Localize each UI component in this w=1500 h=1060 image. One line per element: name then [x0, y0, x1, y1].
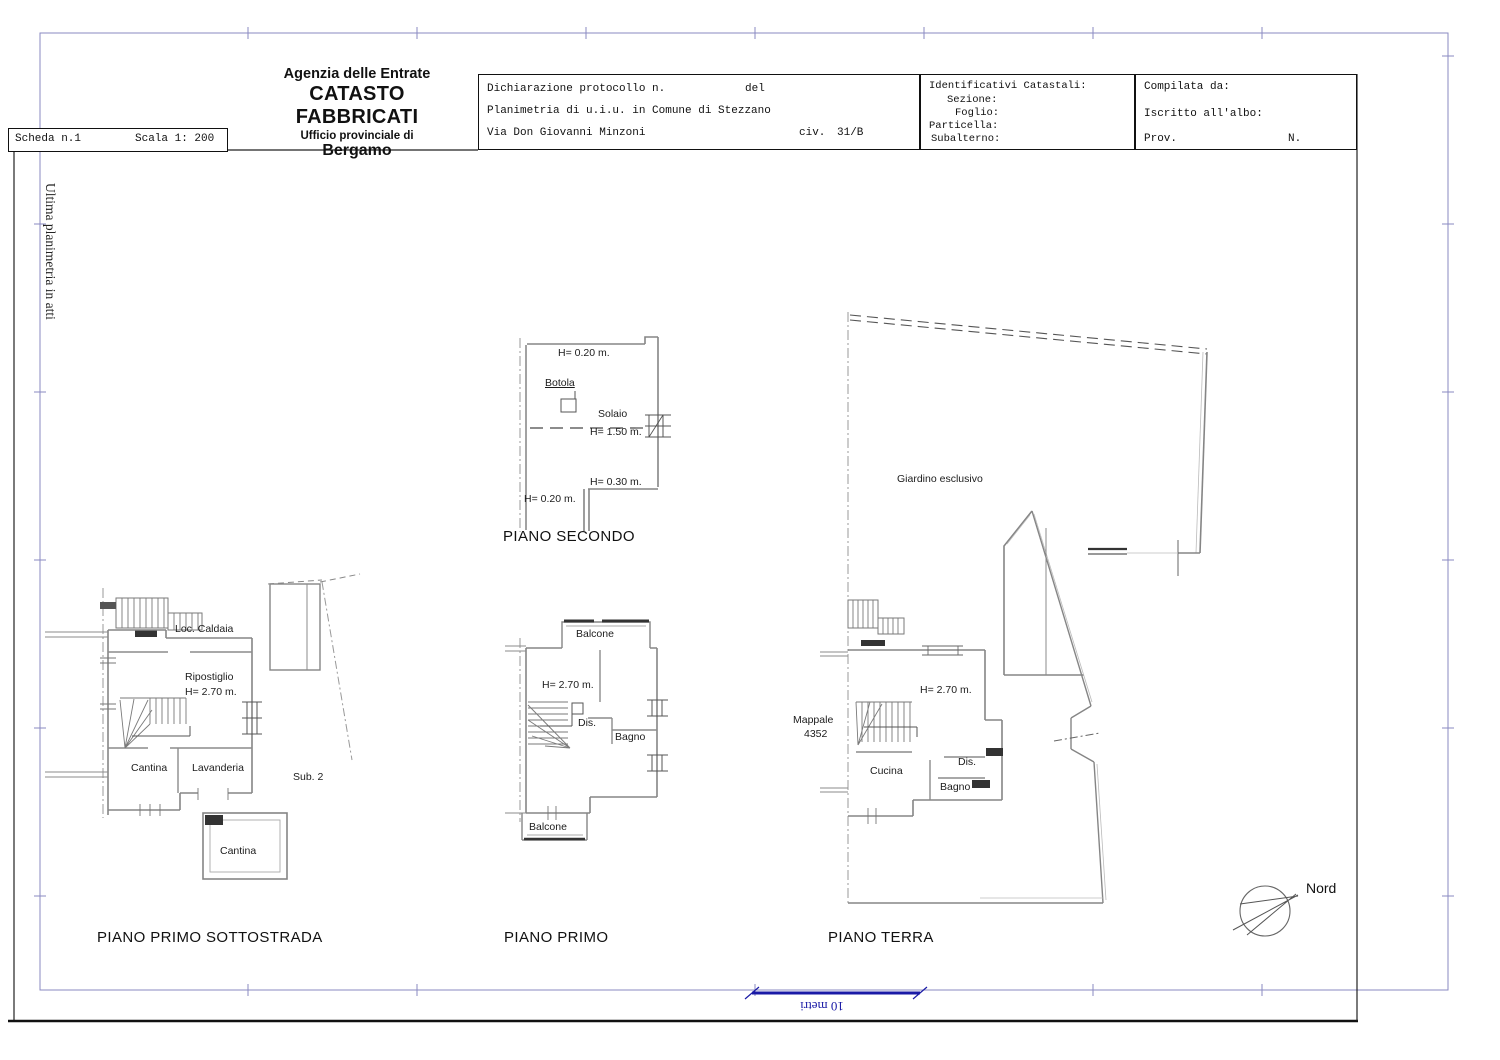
sezione-label: Sezione: — [947, 94, 997, 106]
terra-cucina-label: Cucina — [870, 765, 903, 777]
subalterno-label: Subalterno: — [931, 133, 1000, 145]
plan-piano-terra-drawing — [820, 312, 1207, 905]
scheda-number: Scheda n.1 — [15, 133, 81, 145]
north-label: Nord — [1306, 880, 1336, 896]
secondo-h-low-label: H= 0.30 m. — [590, 476, 642, 488]
cadastral-title: Identificativi Catastali: — [929, 80, 1087, 92]
office-line: Ufficio provinciale di — [252, 130, 462, 142]
compilata-label: Compilata da: — [1144, 81, 1230, 93]
primo-balcone-top-label: Balcone — [576, 628, 614, 640]
foglio-label: Foglio: — [955, 107, 999, 119]
protocol-del-label: del — [745, 83, 765, 95]
terra-giardino-label: Giardino esclusivo — [897, 473, 983, 485]
n-label: N. — [1288, 133, 1301, 145]
secondo-botola-label: Botola — [545, 377, 575, 389]
secondo-solaio-label: Solaio — [598, 408, 627, 420]
planimetria-line: Planimetria di u.i.u. in Comune di Stezz… — [487, 105, 771, 117]
terra-height-label: H= 2.70 m. — [920, 684, 972, 696]
terra-bagno-label: Bagno — [940, 781, 970, 793]
plan-sottostrada-drawing — [45, 574, 360, 879]
primo-height-label: H= 2.70 m. — [542, 679, 594, 691]
street-name: Via Don Giovanni Minzoni — [487, 127, 645, 139]
terra-dis-label: Dis. — [958, 756, 976, 768]
catasto-title: CATASTO FABBRICATI — [252, 83, 462, 129]
north-compass — [1233, 886, 1298, 936]
piano-secondo-title: PIANO SECONDO — [503, 528, 635, 545]
agency-header: Agenzia delle Entrate CATASTO FABBRICATI… — [252, 66, 462, 160]
drawing-layer — [0, 0, 1500, 1060]
margin-note: Ultima planimetria in atti — [42, 183, 58, 320]
piano-sottostrada-title: PIANO PRIMO SOTTOSTRADA — [97, 929, 323, 946]
piano-terra-title: PIANO TERRA — [828, 929, 934, 946]
primo-balcone-bottom-label: Balcone — [529, 821, 567, 833]
cadastral-sheet: Scheda n.1 Scala 1: 200 Agenzia delle En… — [0, 0, 1500, 1060]
sottostrada-lavanderia-label: Lavanderia — [192, 762, 244, 774]
secondo-h-mid-label: H= 1.50 m. — [590, 426, 642, 438]
compiler-box: Compilata da: Iscritto all'albo: Prov. N… — [1135, 74, 1357, 150]
sottostrada-loc-caldaia-label: Loc. Caldaia — [175, 623, 233, 635]
terra-mappale-label: Mappale — [793, 714, 833, 726]
protocol-label: Dichiarazione protocollo n. — [487, 83, 665, 95]
province-name: Bergamo — [252, 142, 462, 160]
agency-name: Agenzia delle Entrate — [252, 66, 462, 82]
civ-value: 31/B — [837, 127, 863, 139]
sottostrada-cantina-bassa-label: Cantina — [220, 845, 256, 857]
sottostrada-height-label: H= 2.70 m. — [185, 686, 237, 698]
civ-label: civ. — [799, 127, 825, 139]
primo-dis-label: Dis. — [578, 717, 596, 729]
secondo-h-bottom-label: H= 0.20 m. — [524, 493, 576, 505]
iscritto-label: Iscritto all'albo: — [1144, 108, 1263, 120]
terra-mappale-number: 4352 — [804, 728, 827, 740]
scale-label: Scala 1: 200 — [135, 133, 214, 145]
sottostrada-cantina-label: Cantina — [131, 762, 167, 774]
piano-primo-title: PIANO PRIMO — [504, 929, 608, 946]
scale-bar-label: 10 metri — [794, 998, 850, 1014]
sottostrada-sub2-label: Sub. 2 — [293, 771, 323, 783]
prov-label: Prov. — [1144, 133, 1177, 145]
declaration-box: Dichiarazione protocollo n. del Planimet… — [478, 74, 920, 150]
cadastral-ids-box: Identificativi Catastali: Sezione: Fogli… — [920, 74, 1135, 150]
scheda-box: Scheda n.1 Scala 1: 200 — [8, 128, 228, 152]
particella-label: Particella: — [929, 120, 998, 132]
sottostrada-ripostiglio-label: Ripostiglio — [185, 671, 233, 683]
primo-bagno-label: Bagno — [615, 731, 645, 743]
secondo-h-top-label: H= 0.20 m. — [558, 347, 610, 359]
